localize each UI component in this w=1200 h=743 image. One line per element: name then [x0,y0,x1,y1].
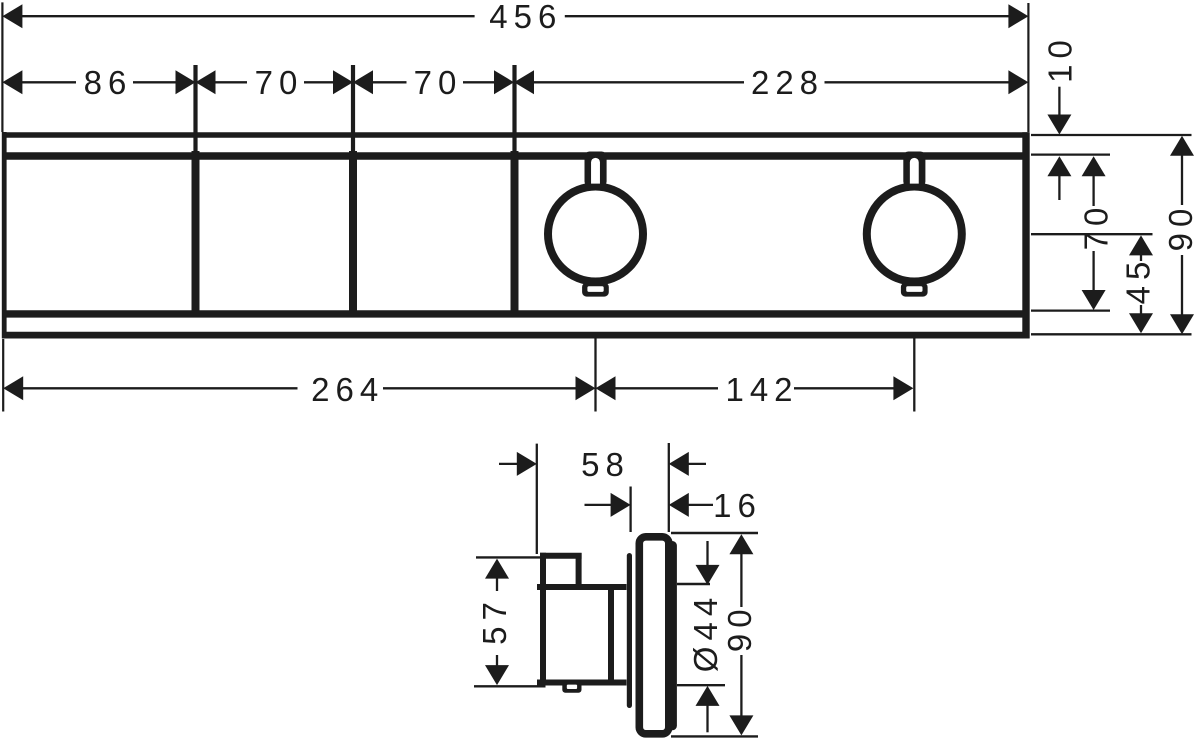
svg-text:456: 456 [489,0,562,35]
svg-text:70: 70 [1077,202,1114,251]
svg-text:16: 16 [713,487,762,524]
svg-text:10: 10 [1041,34,1078,83]
svg-text:86: 86 [84,64,133,101]
svg-text:142: 142 [725,371,798,408]
svg-text:70: 70 [255,64,304,101]
svg-text:45: 45 [1120,256,1157,305]
svg-text:70: 70 [414,64,463,101]
svg-text:90: 90 [721,603,758,652]
svg-text:Ø44: Ø44 [687,592,724,672]
svg-text:57: 57 [476,596,513,645]
svg-text:228: 228 [751,64,824,101]
svg-text:90: 90 [1162,203,1199,252]
svg-text:264: 264 [311,371,384,408]
svg-text:58: 58 [581,446,630,483]
